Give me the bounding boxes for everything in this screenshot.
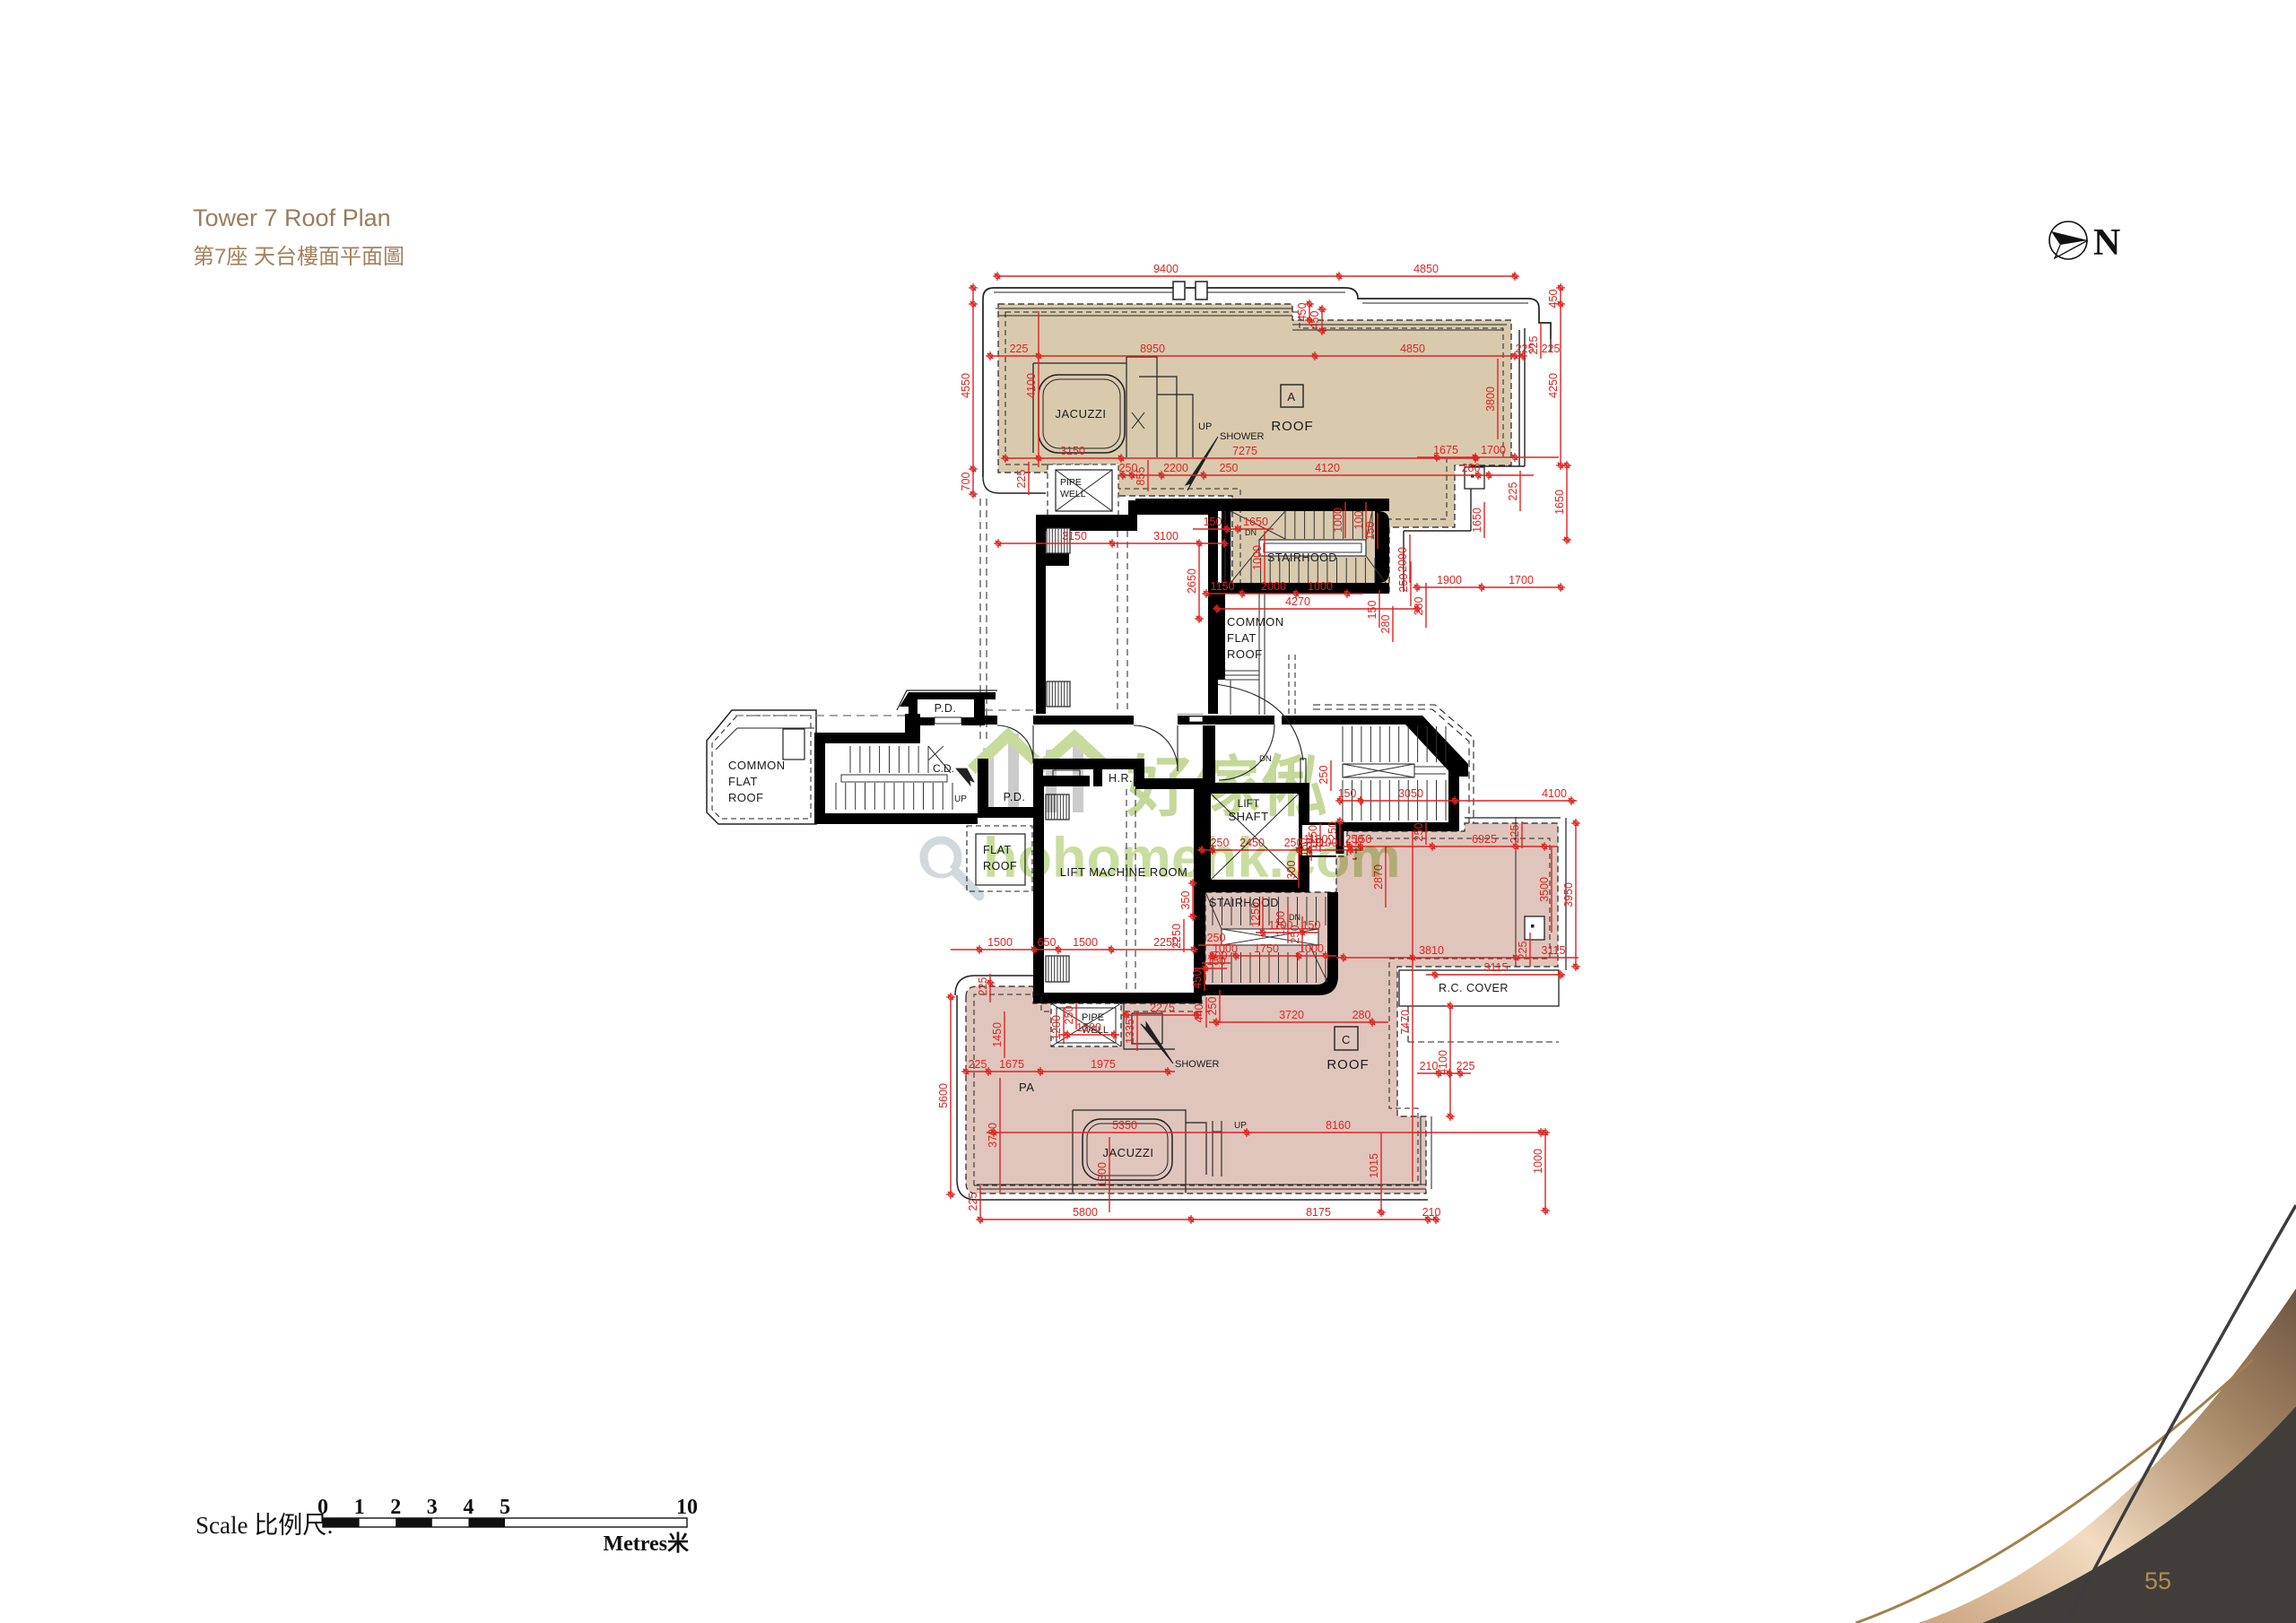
svg-text:1000: 1000: [1308, 580, 1333, 593]
svg-text:WELL: WELL: [1060, 489, 1086, 499]
svg-text:225: 225: [969, 1058, 987, 1071]
svg-text:150: 150: [1338, 787, 1357, 800]
svg-text:6925: 6925: [1472, 833, 1497, 846]
svg-text:650: 650: [1038, 936, 1057, 949]
svg-text:3950: 3950: [1562, 882, 1575, 907]
svg-text:SHOWER: SHOWER: [1220, 431, 1265, 442]
svg-text:C.D.: C.D.: [933, 762, 954, 775]
svg-text:1000: 1000: [1532, 1149, 1544, 1174]
svg-text:1015: 1015: [1368, 1153, 1380, 1178]
svg-text:2: 2: [390, 1496, 401, 1519]
svg-text:450: 450: [1296, 303, 1309, 322]
svg-text:ROOF: ROOF: [1326, 1057, 1369, 1072]
svg-text:7275: 7275: [1232, 445, 1257, 457]
svg-text:8175: 8175: [1306, 1206, 1331, 1219]
svg-text:225: 225: [1015, 470, 1028, 489]
svg-text:225: 225: [977, 977, 989, 996]
svg-text:3500: 3500: [1538, 877, 1551, 902]
svg-text:4100: 4100: [1542, 787, 1567, 800]
svg-text:210: 210: [1420, 1060, 1439, 1072]
svg-text:Metres米: Metres米: [603, 1532, 689, 1556]
svg-text:450: 450: [1309, 311, 1321, 330]
svg-text:1500: 1500: [1076, 1021, 1101, 1034]
svg-text:250: 250: [1220, 462, 1239, 474]
svg-text:1500: 1500: [1073, 936, 1098, 949]
svg-text:4550: 4550: [960, 373, 972, 398]
svg-text:第7座 天台樓面平面圖: 第7座 天台樓面平面圖: [193, 245, 404, 269]
svg-text:R.C. COVER: R.C. COVER: [1439, 982, 1509, 994]
svg-text:1100: 1100: [1269, 919, 1293, 932]
svg-text:3115: 3115: [1484, 961, 1509, 974]
svg-text:5: 5: [500, 1496, 510, 1519]
svg-text:3: 3: [427, 1496, 438, 1519]
svg-text:N: N: [2093, 222, 2120, 264]
svg-text:FLAT: FLAT: [728, 775, 758, 788]
svg-text:250: 250: [1206, 997, 1219, 1016]
svg-text:150: 150: [1302, 919, 1321, 932]
svg-text:250: 250: [1413, 823, 1425, 842]
svg-text:UP: UP: [954, 794, 967, 804]
svg-text:250: 250: [1063, 1006, 1075, 1025]
svg-text:5600: 5600: [937, 1083, 950, 1108]
svg-text:JACUZZI: JACUZZI: [1056, 407, 1107, 421]
svg-text:UP: UP: [1234, 1121, 1247, 1131]
svg-text:1500: 1500: [987, 936, 1013, 949]
svg-text:1150: 1150: [1211, 580, 1235, 593]
svg-text:280: 280: [1462, 462, 1481, 474]
svg-text:好傢俬: 好傢俬: [1126, 750, 1328, 824]
svg-text:225: 225: [1527, 336, 1540, 355]
svg-text:Scale 比例尺:: Scale 比例尺:: [196, 1512, 334, 1539]
svg-text:3115: 3115: [1542, 944, 1566, 957]
svg-text:1: 1: [354, 1496, 365, 1519]
svg-text:55: 55: [2144, 1567, 2171, 1594]
svg-text:4270: 4270: [1285, 595, 1310, 608]
svg-text:450: 450: [1191, 970, 1204, 989]
svg-text:1900: 1900: [1437, 574, 1462, 586]
svg-text:Tower 7 Roof Plan: Tower 7 Roof Plan: [193, 204, 391, 231]
svg-text:COMMON: COMMON: [728, 759, 786, 772]
svg-text:2250: 2250: [1170, 924, 1183, 949]
svg-text:225: 225: [1542, 343, 1561, 355]
svg-text:3100: 3100: [1153, 530, 1178, 542]
svg-text:C: C: [1342, 1033, 1351, 1046]
svg-text:2275: 2275: [1150, 1002, 1175, 1014]
svg-text:4100: 4100: [1025, 373, 1038, 398]
svg-text:FLAT: FLAT: [1227, 631, 1257, 645]
svg-text:225: 225: [1509, 825, 1521, 844]
svg-text:STAIRHOOD: STAIRHOOD: [1209, 897, 1279, 909]
svg-text:1700: 1700: [1509, 574, 1534, 586]
svg-text:2650: 2650: [1186, 568, 1198, 594]
svg-text:UP: UP: [1198, 421, 1212, 432]
svg-text:225: 225: [1507, 482, 1519, 501]
svg-text:280: 280: [1379, 615, 1392, 634]
svg-text:1675: 1675: [1433, 444, 1458, 456]
svg-text:225: 225: [1457, 1060, 1475, 1072]
svg-text:100: 100: [1209, 950, 1228, 962]
svg-text:1650: 1650: [1553, 490, 1566, 515]
svg-text:1650: 1650: [1471, 508, 1483, 533]
svg-text:PIPE: PIPE: [1060, 477, 1082, 488]
svg-text:1650: 1650: [1243, 516, 1268, 528]
svg-text:1675: 1675: [999, 1058, 1024, 1071]
svg-text:ROOF: ROOF: [728, 791, 764, 804]
svg-text:5800: 5800: [1073, 1206, 1098, 1219]
svg-text:450: 450: [1547, 290, 1560, 308]
svg-text:4120: 4120: [1315, 462, 1340, 474]
svg-text:JACUZZI: JACUZZI: [1103, 1146, 1154, 1159]
svg-text:280: 280: [1413, 597, 1425, 616]
svg-text:1700: 1700: [1481, 444, 1506, 456]
svg-text:COMMON: COMMON: [1227, 615, 1284, 629]
svg-text:A: A: [1287, 390, 1295, 404]
svg-text:150: 150: [1204, 516, 1222, 528]
svg-text:3800: 3800: [1484, 386, 1497, 412]
svg-text:hohomehk.com: hohomehk.com: [983, 827, 1401, 890]
svg-text:700: 700: [960, 473, 972, 491]
svg-text:1335: 1335: [1124, 1019, 1136, 1044]
svg-text:3810: 3810: [1419, 944, 1444, 957]
svg-text:100: 100: [1352, 511, 1365, 530]
svg-text:2090: 2090: [1396, 547, 1409, 572]
svg-text:250: 250: [1397, 574, 1410, 593]
svg-text:4850: 4850: [1400, 343, 1425, 355]
svg-text:150: 150: [1366, 601, 1378, 620]
svg-text:4850: 4850: [1413, 263, 1439, 275]
svg-text:250: 250: [1207, 932, 1226, 944]
svg-text:P.D.: P.D.: [935, 702, 957, 715]
svg-text:440: 440: [1193, 1004, 1205, 1023]
svg-text:5350: 5350: [1112, 1119, 1137, 1132]
svg-text:1000: 1000: [1332, 508, 1344, 533]
svg-text:8160: 8160: [1326, 1119, 1351, 1132]
svg-text:2200: 2200: [1163, 462, 1188, 474]
svg-text:225: 225: [967, 1193, 979, 1211]
svg-text:150: 150: [1364, 522, 1377, 541]
svg-text:7470: 7470: [1399, 1010, 1412, 1035]
svg-text:3720: 3720: [1279, 1009, 1304, 1021]
svg-text:350: 350: [1179, 891, 1192, 910]
svg-text:3050: 3050: [1398, 787, 1423, 800]
svg-text:225: 225: [1010, 343, 1029, 355]
svg-text:855: 855: [1135, 467, 1147, 486]
svg-text:1200: 1200: [1050, 1015, 1063, 1040]
svg-text:ROOF: ROOF: [1271, 419, 1313, 434]
svg-text:1250: 1250: [1249, 902, 1262, 927]
svg-text:9400: 9400: [1153, 263, 1178, 275]
svg-text:0: 0: [317, 1496, 328, 1519]
svg-text:3150: 3150: [1062, 530, 1087, 542]
svg-text:PA: PA: [1019, 1081, 1034, 1094]
svg-text:4250: 4250: [1547, 373, 1560, 398]
svg-text:1975: 1975: [1091, 1058, 1116, 1071]
svg-text:225: 225: [1517, 942, 1529, 960]
svg-text:3150: 3150: [1060, 445, 1085, 457]
svg-text:4: 4: [463, 1496, 474, 1519]
svg-text:280: 280: [1352, 1009, 1371, 1021]
svg-text:1450: 1450: [991, 1022, 1004, 1047]
svg-text:2000: 2000: [1261, 580, 1286, 593]
svg-text:1000: 1000: [1251, 545, 1264, 570]
svg-text:SHOWER: SHOWER: [1175, 1059, 1220, 1070]
svg-text:ROOF: ROOF: [1227, 647, 1263, 661]
svg-text:STAIRHOOD: STAIRHOOD: [1267, 551, 1337, 564]
svg-text:1750: 1750: [1254, 942, 1279, 955]
svg-text:1300: 1300: [1096, 1162, 1109, 1187]
svg-text:8950: 8950: [1140, 343, 1165, 355]
svg-text:210: 210: [1422, 1206, 1441, 1219]
svg-text:10: 10: [676, 1496, 698, 1519]
